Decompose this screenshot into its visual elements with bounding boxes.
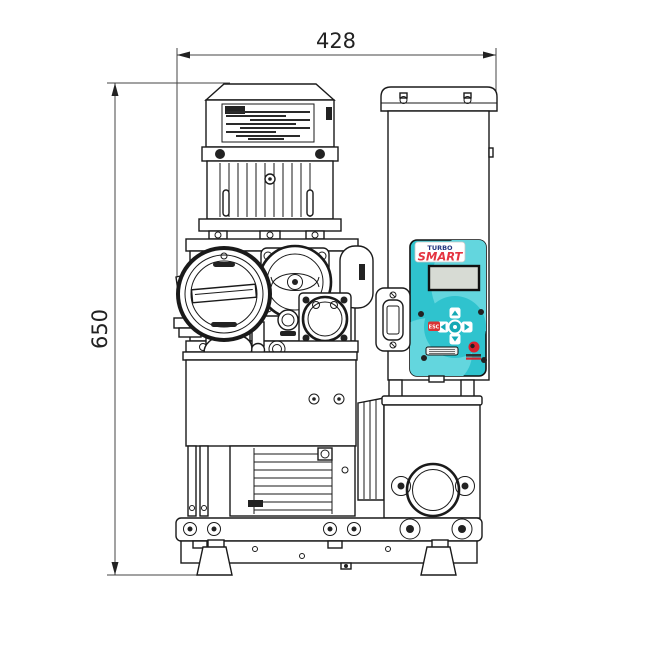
panel-screw — [481, 357, 487, 363]
inlet-flange — [299, 293, 351, 345]
card-slot — [426, 347, 458, 355]
pump-head — [174, 231, 373, 369]
motor — [199, 84, 341, 231]
width-dimension-label: 428 — [316, 29, 356, 53]
tower-leg — [461, 380, 474, 397]
power-switch-plate — [376, 288, 410, 351]
pump-outline-drawing: 428 650 — [0, 0, 650, 650]
height-dimension-label: 650 — [88, 309, 112, 349]
brand-bottom-text: SMART — [418, 250, 464, 264]
oil-drain-cap — [278, 310, 298, 336]
bellows-connector — [358, 398, 384, 500]
arrow-right-icon — [483, 52, 496, 59]
controller-assembly: TURBO SMART ESC — [358, 87, 517, 518]
panel-screw — [418, 311, 424, 317]
arrow-left-icon — [177, 52, 190, 59]
lower-housing — [382, 396, 482, 518]
arrow-down-icon — [112, 562, 119, 575]
arrow-up-icon — [112, 83, 119, 96]
technical-drawing: 428 650 — [0, 0, 650, 650]
enter-key-icon — [453, 325, 457, 329]
brand-label: TURBO SMART — [415, 242, 465, 264]
oil-sight-glass — [176, 248, 270, 340]
oil-tank — [183, 352, 357, 446]
panel-screw — [421, 355, 427, 361]
base-frame — [176, 518, 482, 575]
panel-screw — [478, 309, 484, 315]
cooling-fins — [188, 446, 355, 516]
pump-assembly — [174, 84, 373, 516]
motor-cooling-fins — [207, 161, 333, 219]
controller-cap — [381, 87, 497, 111]
tower-leg — [389, 380, 402, 397]
esc-key-label: ESC — [429, 325, 440, 331]
tower-tab — [429, 376, 444, 382]
display-screen — [429, 266, 479, 290]
